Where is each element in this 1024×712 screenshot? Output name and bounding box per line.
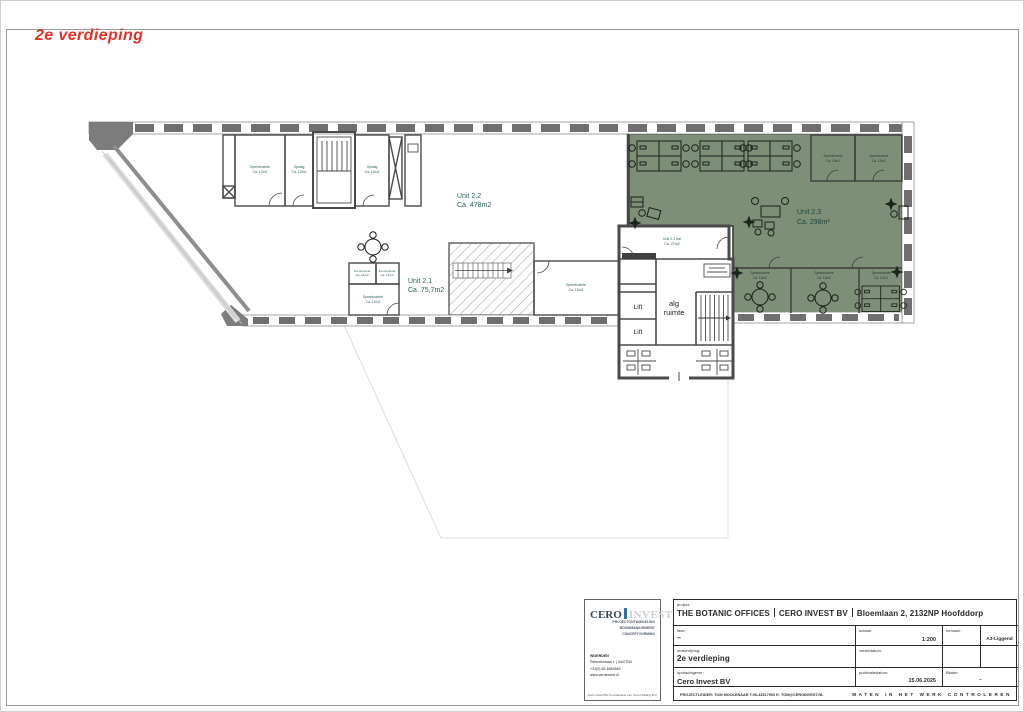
round-table	[358, 232, 388, 262]
room-area: Ca. 12m2	[872, 159, 886, 163]
unit-2-3-name: Unit 2.3	[797, 209, 821, 216]
footer-row: PROJECTLEIDER: TOM MOOLENAAR T:06-435179…	[674, 686, 1018, 702]
opdrachtgever-value: Cero Invest BV	[677, 677, 852, 686]
formaat-label: formaat:	[946, 628, 977, 633]
room-label: Spreekruimte	[566, 283, 586, 287]
empty-cell	[942, 645, 980, 667]
room-label: Spreekruimte	[250, 165, 270, 169]
riser	[405, 135, 421, 206]
publicatiedatum-label: publicatiedatum:	[859, 670, 939, 675]
unit-2-1-area: Ca. 75,7m2	[408, 287, 444, 294]
room-label: Spreekruimte	[870, 154, 889, 158]
address-line: Pelmolenlaan 1 | 3447GW	[590, 659, 632, 665]
unit-2-1-hal-name: Unit 2.1 hal	[663, 237, 681, 241]
schaal-cell: schaal: 1:200	[855, 625, 942, 645]
room-area: Ca. 12m2	[826, 159, 840, 163]
unit-2-2-name: Unit 2.2	[457, 193, 481, 200]
room-label: Spreekruimte	[751, 271, 770, 275]
schaal-value: 1:200	[922, 637, 936, 643]
bladnr-value: –	[943, 678, 1018, 683]
room-area: Ca. 12m2	[380, 273, 393, 277]
fase-value: –	[677, 635, 852, 642]
opdrachtgever-label: opdrachtgever:	[677, 670, 852, 675]
drawing-sheet: 2e verdieping	[0, 0, 1024, 712]
schaal-label: schaal:	[859, 628, 939, 633]
empty-cell	[980, 645, 1018, 667]
title-block: project: THE BOTANIC OFFICESCERO INVEST …	[673, 599, 1017, 701]
versiedatum-label: versiedatum:	[859, 648, 939, 653]
omschrijving-label: omschrijving:	[677, 648, 852, 653]
projectleider-text: PROJECTLEIDER: TOM MOOLENAAR T:06-435179…	[680, 693, 823, 697]
omschrijving-cell: omschrijving: 2e verdieping	[674, 645, 855, 667]
publicatiedatum-cell: publicatiedatum: 15.06.2025	[855, 667, 942, 686]
room-area: Ca. 12m2	[753, 276, 767, 280]
project-name: THE BOTANIC OFFICES	[677, 609, 770, 618]
maten-note: MATEN IN HET WERK CONTROLEREN	[852, 692, 1012, 697]
room-label: Spreekruimte	[872, 271, 891, 275]
room-area: Ca. 12m2	[569, 288, 584, 292]
room-label: Opslag	[367, 165, 378, 169]
stair-void	[449, 243, 534, 315]
bladnr-cell: Bladnr: –	[942, 667, 1018, 686]
project-cell: project: THE BOTANIC OFFICESCERO INVEST …	[674, 600, 1018, 625]
room-label: Spreekruimte	[815, 271, 834, 275]
room-area: Ca. 12m2	[292, 170, 307, 174]
unit-2-3-area: Ca. 298m²	[797, 219, 830, 226]
logo-address: WOERDEN Pelmolenlaan 1 | 3447GW +31(0) 8…	[590, 653, 632, 679]
tagline-line: CONCEPTVORMING	[612, 632, 655, 638]
separator	[774, 608, 775, 617]
formaat-value-cell: A3-Liggend	[980, 625, 1018, 645]
alg-ruimte-label-1: alg	[669, 299, 679, 308]
formaat-value: A3-Liggend	[981, 637, 1018, 642]
unit-2-1-hal-area: Ca. 27m2	[664, 242, 680, 246]
lift-2-label: Lift	[634, 329, 643, 336]
room-area: Ca. 12m2	[253, 170, 268, 174]
logo-bar	[624, 608, 627, 619]
separator	[852, 608, 853, 617]
project-value: THE BOTANIC OFFICESCERO INVEST BVBloemla…	[677, 608, 1015, 618]
publicatiedatum-value: 15.06.2025	[908, 678, 936, 684]
address-line: www.ceroinvest.nl	[590, 672, 632, 678]
room-area: Ca. 12m2	[817, 276, 831, 280]
lift-1-label: Lift	[634, 304, 643, 311]
stairwell-north	[313, 132, 355, 208]
room-area: Ca. 12m2	[366, 300, 381, 304]
room-label: Spreekruimte	[824, 154, 843, 158]
room-area: Ca. 12m2	[874, 276, 888, 280]
versiedatum-cell: versiedatum:	[855, 645, 942, 667]
logo-tagline: PROJECTONTWIKKELING BOUWMANAGEMENT CONCE…	[612, 620, 655, 637]
bladnr-label: Bladnr:	[946, 670, 1015, 675]
alg-ruimte-label-2: ruimte	[664, 308, 685, 317]
unit-2-1-name: Unit 2.1	[408, 278, 432, 285]
omschrijving-value: 2e verdieping	[677, 654, 852, 663]
core-band	[622, 253, 656, 259]
unit-2-2-area: Ca. 478m2	[457, 202, 491, 209]
room-label: Spreekruimte	[363, 295, 383, 299]
tagline-line: PROJECTONTWIKKELING	[612, 620, 655, 626]
fase-label: fase:	[677, 628, 852, 633]
project-label: project:	[677, 602, 1015, 607]
logo-footer: Cero Invest BV is onderdeel van Cero Hol…	[585, 693, 660, 697]
project-client: CERO INVEST BV	[779, 609, 848, 618]
formaat-label-cell: formaat:	[942, 625, 980, 645]
room-area: Ca. 12m2	[355, 273, 368, 277]
logo-box: CEROINVEST® PROJECTONTWIKKELING BOUWMANA…	[584, 599, 661, 701]
room-area: Ca. 12m2	[365, 170, 380, 174]
fase-cell: fase: –	[674, 625, 855, 645]
opdrachtgever-cell: opdrachtgever: Cero Invest BV	[674, 667, 855, 686]
room-label: Opslag	[294, 165, 305, 169]
project-address: Bloemlaan 2, 2132NP Hoofddorp	[857, 609, 983, 618]
